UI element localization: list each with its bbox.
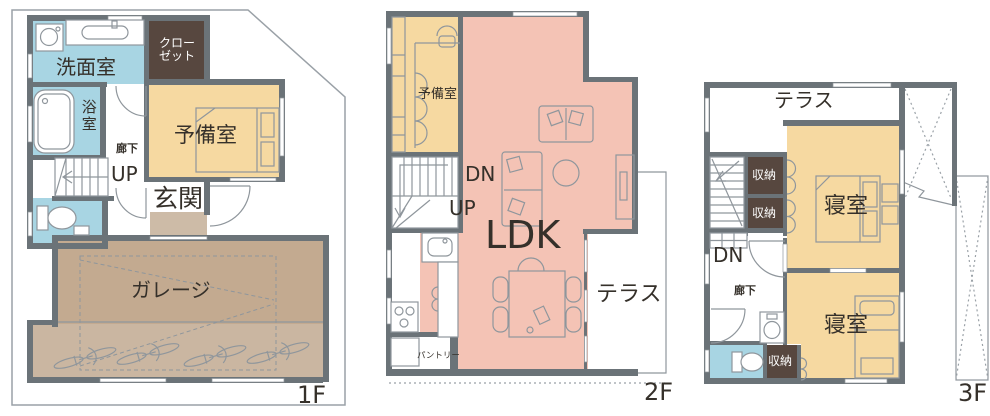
toilet3f-icon bbox=[732, 352, 763, 372]
room-label-hallway-3f: 廊下 bbox=[734, 285, 756, 297]
room-label-washroom: 洗面室 bbox=[56, 57, 116, 78]
room-label-spare-1f: 予備室 bbox=[174, 124, 237, 146]
stairs-down-label-3f: DN bbox=[713, 245, 743, 266]
room-label-hallway-1f: 廊下 bbox=[116, 143, 138, 155]
room-label-bath: 浴室 bbox=[80, 99, 96, 133]
floorplan-page: 洗面室 クロー ゼット 浴室 予備室 廊下 UP 玄関 ガレージ 1F 予備室 … bbox=[0, 0, 990, 416]
floor-label-3f: 3F bbox=[958, 381, 987, 406]
stairs-up-label-1f: UP bbox=[111, 164, 138, 185]
room-label-ldk: LDK bbox=[485, 216, 560, 256]
room-label-spare-2f: 予備室 bbox=[418, 88, 457, 102]
spare-room-2f-area bbox=[391, 16, 460, 154]
floor-label-2f: 2F bbox=[644, 380, 673, 405]
floor-label-1f: 1F bbox=[297, 383, 326, 408]
room-label-entrance: 玄関 bbox=[153, 186, 203, 212]
stairs-3f bbox=[710, 157, 747, 248]
closet-label-line1: クロー bbox=[150, 37, 204, 50]
washbasin-icon bbox=[760, 312, 784, 343]
bathtub-icon bbox=[34, 90, 74, 153]
stove-icon bbox=[391, 302, 418, 332]
floor-plan-3f bbox=[704, 82, 988, 384]
stairs-1f bbox=[55, 158, 108, 196]
room-label-terrace-2f: テラス bbox=[596, 283, 662, 306]
floor-plan-2f bbox=[386, 11, 666, 383]
room-label-garage: ガレージ bbox=[131, 280, 211, 301]
terrace-railing-2f bbox=[637, 172, 666, 373]
room-label-storage3: 収納 bbox=[768, 355, 792, 368]
vanity-sink-icon bbox=[66, 20, 144, 45]
entry-step-area bbox=[150, 212, 207, 235]
room-label-bedroom1: 寝室 bbox=[824, 195, 868, 218]
void-areas-3f bbox=[903, 89, 988, 380]
pantry-shelf-icon bbox=[391, 338, 419, 366]
washing-machine-icon bbox=[36, 24, 63, 51]
room-label-closet: クロー ゼット bbox=[150, 37, 204, 62]
room-label-storage1: 収納 bbox=[752, 169, 776, 182]
room-label-terrace-3f: テラス bbox=[774, 90, 834, 111]
room-label-pantry: パントリー bbox=[417, 352, 460, 361]
closet-label-line2: ゼット bbox=[150, 50, 204, 63]
kitchen-sink-icon bbox=[422, 233, 458, 262]
stairs-down-label-2f: DN bbox=[465, 164, 495, 185]
room-label-bedroom2: 寝室 bbox=[824, 314, 868, 337]
stairs-up-label-2f: UP bbox=[449, 198, 476, 219]
room-label-storage2: 収納 bbox=[752, 207, 776, 220]
